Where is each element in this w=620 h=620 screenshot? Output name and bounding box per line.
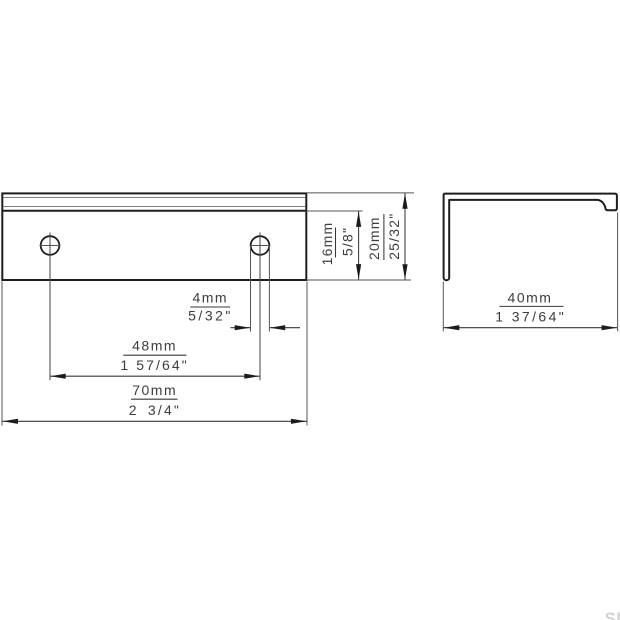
svg-text:40mm: 40mm	[508, 289, 553, 305]
svg-text:2 3/4": 2 3/4"	[129, 402, 181, 418]
svg-text:16mm: 16mm	[319, 222, 335, 266]
svg-text:1 37/64": 1 37/64"	[495, 309, 566, 325]
svg-text:5/32": 5/32"	[188, 308, 233, 324]
svg-text:20mm: 20mm	[366, 216, 382, 260]
svg-text:SU: SU	[605, 610, 620, 620]
svg-text:1 57/64": 1 57/64"	[120, 357, 188, 373]
svg-text:5/8": 5/8"	[340, 227, 356, 256]
svg-text:25/32": 25/32"	[386, 213, 402, 260]
svg-text:70mm: 70mm	[132, 382, 177, 398]
svg-text:4mm: 4mm	[192, 289, 228, 305]
svg-text:48mm: 48mm	[132, 337, 177, 353]
